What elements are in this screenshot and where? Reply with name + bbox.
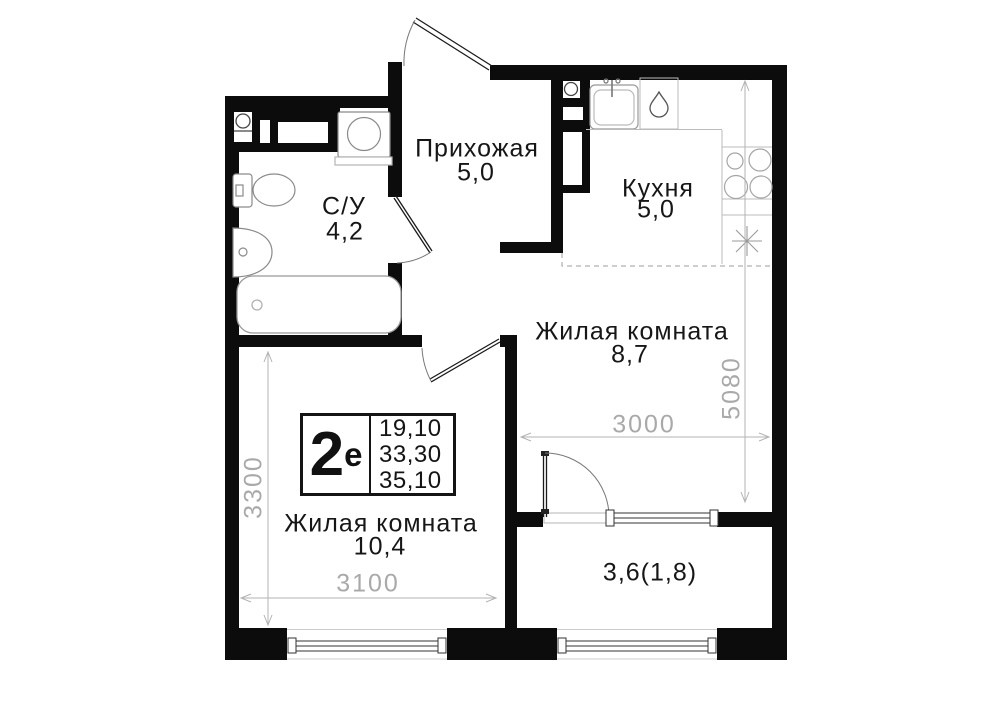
entrance-door-icon: [404, 18, 492, 70]
kitchen-zone-dashed-boundary: [562, 253, 771, 266]
washing-machine-icon: [335, 112, 392, 165]
apartment-type-stamp: 2е 19,10 33,30 35,10: [300, 413, 456, 496]
apartment-areas: 19,10 33,30 35,10: [371, 416, 453, 493]
dimension-3000: 3000: [612, 411, 676, 440]
apartment-type-number: 2: [310, 424, 344, 486]
stamp-area-value: 19,10: [379, 416, 453, 442]
balcony-door-icon: [541, 451, 609, 523]
window-icon: [287, 630, 447, 660]
hallway-area: 5,0: [457, 159, 495, 188]
light-star-icon: [732, 226, 762, 256]
bathtub-icon: [237, 276, 401, 333]
bathroom-door-icon: [394, 196, 432, 263]
balcony-wall-window: [606, 510, 718, 526]
kitchen-sink-icon: [590, 79, 638, 129]
bathroom-sink-icon: [233, 228, 272, 277]
toilet-icon: [233, 174, 295, 207]
balcony-area: 3,6(1,8): [603, 559, 697, 588]
room-door-icon: [422, 339, 500, 382]
floor-plan: Прихожая 5,0 Кухня 5,0 С/У 4,2 Жилая ком…: [0, 0, 1000, 707]
dimension-3100: 3100: [336, 570, 400, 599]
dimension-3300: 3300: [240, 455, 269, 519]
stamp-area-value: 35,10: [379, 468, 453, 494]
living-second-area: 10,4: [354, 533, 407, 562]
floor-plan-drawing: [0, 0, 1000, 707]
apartment-type-letter: е: [344, 438, 362, 471]
apartment-type: 2е: [303, 416, 371, 493]
water-drop-icon: [640, 78, 678, 129]
dimension-5080: 5080: [718, 356, 747, 420]
kitchen-area: 5,0: [637, 196, 675, 225]
stamp-area-value: 33,30: [379, 442, 453, 468]
bathroom-area: 4,2: [326, 218, 364, 247]
window-icon: [557, 630, 717, 660]
stove-burners-icon: [725, 149, 773, 199]
living-main-area: 8,7: [611, 341, 649, 370]
